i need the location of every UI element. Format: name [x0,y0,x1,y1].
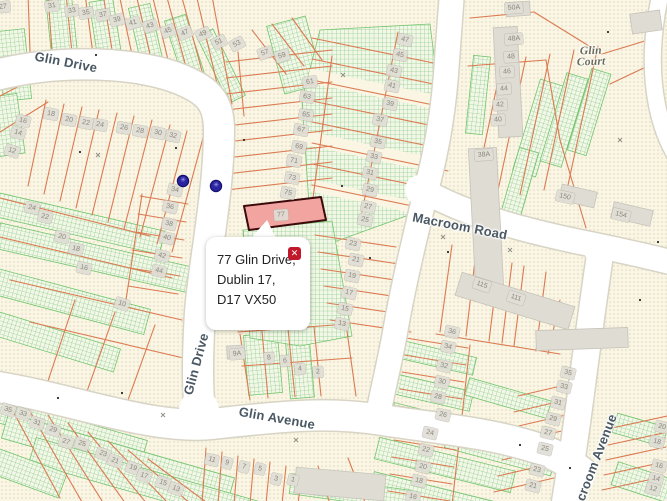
house-number-label: 2 [313,366,324,378]
house-number-label: 8 [264,352,275,364]
house-number-label: 33 [64,4,79,17]
house-number-label: 46 [500,66,515,78]
house-number-label: 65 [298,108,313,121]
house-number-label: 26 [116,121,132,134]
house-number-label: 38A [474,149,493,161]
popup-address-line3: D17 VX50 [217,290,300,310]
survey-marker-icon: ✳ [178,176,188,186]
house-number-label: 69 [291,140,306,153]
house-number-label: 6 [280,355,291,367]
house-number-label: 44 [497,83,512,95]
map-viewport[interactable]: 2731333537394143454749515318202224262830… [0,0,667,501]
street-label: GlinCourt [576,46,605,69]
house-number-label: 73 [284,171,300,184]
house-number-label: 75 [280,186,296,199]
popup-close-button[interactable]: ✕ [288,247,301,260]
house-number-label: 31 [44,0,59,12]
house-number-label: 9A [229,348,244,360]
house-number-label: 16 [405,490,421,501]
house-number-label: 67 [293,123,308,136]
house-number-label: 35 [78,6,93,19]
house-number-label: 27 [0,1,10,13]
house-number-label: 71 [286,154,301,167]
survey-marker-icon: ✳ [211,181,221,191]
house-number-label: 48A [504,33,523,45]
house-number-label: 50A [504,2,523,14]
house-number-label: 28 [132,124,148,137]
house-number-label: 63 [299,91,314,104]
map-canvas [0,0,667,501]
address-popup: 77 Glin Drive, Dublin 17, D17 VX50 ✕ [206,237,310,330]
popup-address-line2: Dublin 17, [217,270,300,290]
house-number-label: 42 [493,99,508,111]
house-number-label: 24 [92,118,107,131]
house-number-label: 48 [504,51,519,63]
house-number-label: 18 [43,107,58,120]
house-number-label: 40 [491,114,506,126]
house-number-label: 77 [274,209,289,221]
house-number-label: 61 [302,76,317,89]
house-number-label: 4 [295,363,306,375]
house-number-label: 20 [61,113,76,126]
